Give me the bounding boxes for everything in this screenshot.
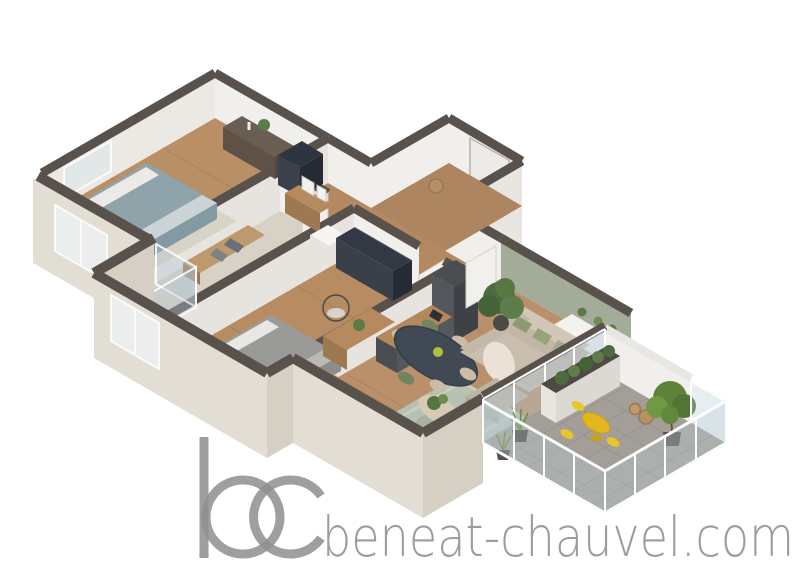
watermark-site-text: beneat-chauvel.com (322, 505, 794, 564)
table-base (590, 435, 602, 441)
coffee-table-plant (438, 394, 448, 404)
table-bowl (433, 347, 443, 357)
basket (429, 179, 443, 193)
plant (258, 119, 270, 131)
wire-chair-seat (327, 308, 345, 318)
logo-c (254, 480, 321, 554)
foliage (661, 406, 679, 424)
floor-plan-svg: beneat-chauvel.com (0, 0, 801, 564)
foliage (500, 295, 524, 319)
plant (353, 319, 365, 331)
wicker-basket (630, 404, 641, 415)
foliage (495, 278, 515, 298)
foliage (478, 295, 500, 317)
floor-plan-render: bc (0, 0, 801, 564)
apartment-scene (33, 73, 726, 518)
shelf-plant (578, 308, 587, 317)
